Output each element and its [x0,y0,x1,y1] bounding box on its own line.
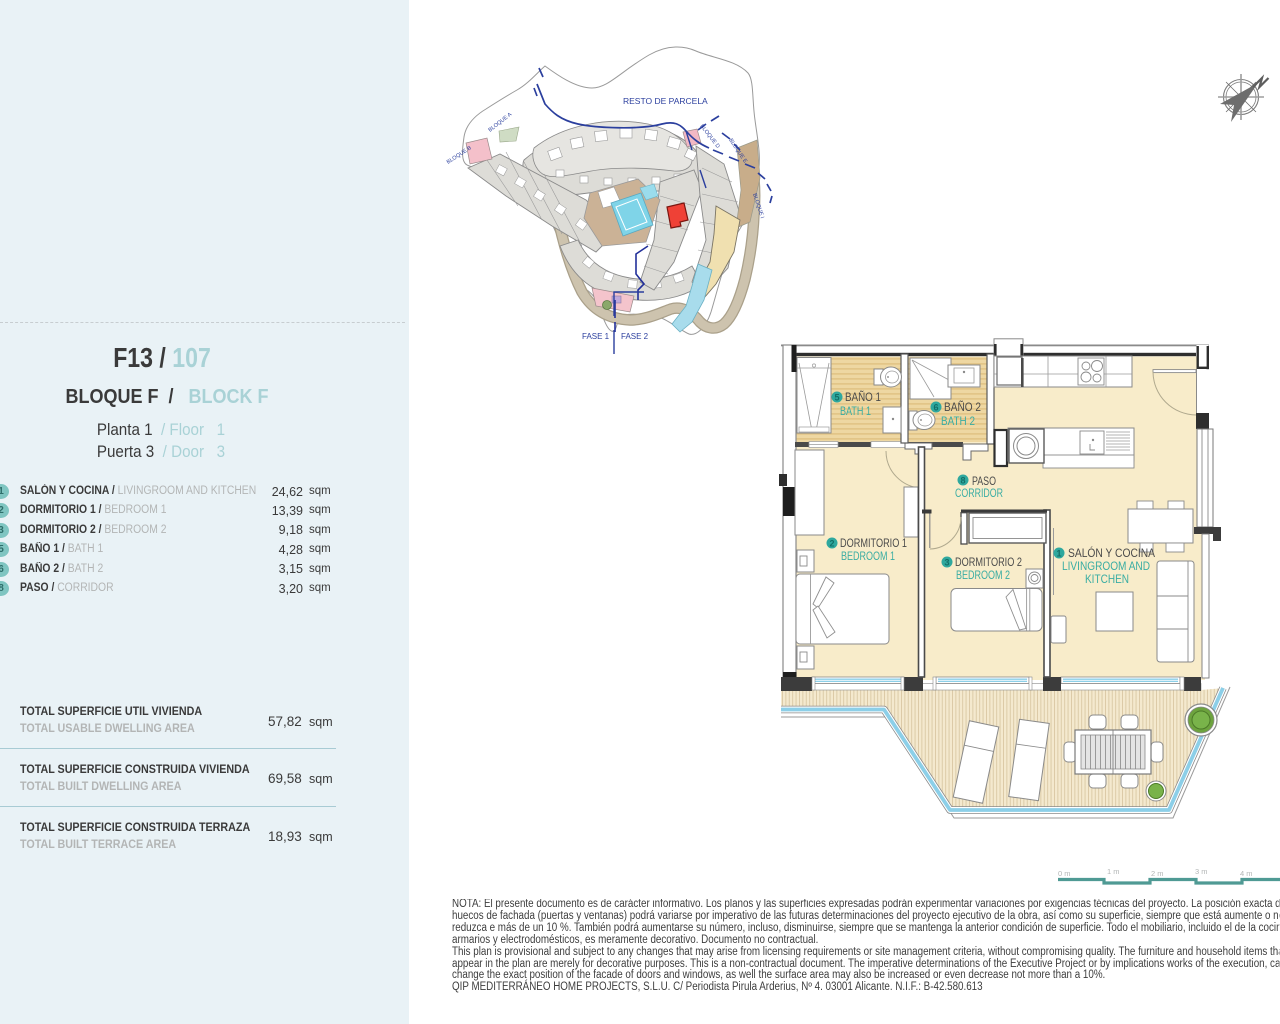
svg-text:KITCHEN: KITCHEN [1085,572,1129,586]
svg-text:8: 8 [960,476,965,486]
svg-text:RESTO DE PARCELA: RESTO DE PARCELA [623,96,708,106]
svg-text:CORRIDOR: CORRIDOR [955,486,1003,500]
svg-text:2: 2 [829,539,834,549]
svg-text:1 m: 1 m [1107,867,1120,876]
svg-text:FASE 2: FASE 2 [621,332,649,341]
svg-text:BATH 1: BATH 1 [840,404,871,418]
svg-text:BAÑO 2: BAÑO 2 [944,400,981,414]
svg-text:BAÑO 1: BAÑO 1 [845,390,881,404]
svg-text:0 m: 0 m [1058,869,1071,878]
svg-text:2 m: 2 m [1151,869,1164,878]
svg-text:SALÓN Y COCINA: SALÓN Y COCINA [1068,545,1155,560]
svg-text:3 m: 3 m [1195,867,1208,876]
svg-text:FASE 1: FASE 1 [582,332,610,341]
svg-text:LIVINGROOM AND: LIVINGROOM AND [1062,559,1150,573]
svg-text:6: 6 [933,403,938,413]
svg-text:4 m: 4 m [1240,869,1253,878]
svg-text:BATH 2: BATH 2 [941,414,975,428]
svg-text:DORMITORIO 1: DORMITORIO 1 [840,536,907,550]
svg-text:BEDROOM 2: BEDROOM 2 [956,568,1010,582]
svg-text:3: 3 [944,558,949,568]
svg-text:5: 5 [834,393,839,403]
svg-text:DORMITORIO 2: DORMITORIO 2 [955,555,1022,569]
svg-text:BEDROOM 1: BEDROOM 1 [841,549,895,563]
svg-text:1: 1 [1056,549,1061,559]
